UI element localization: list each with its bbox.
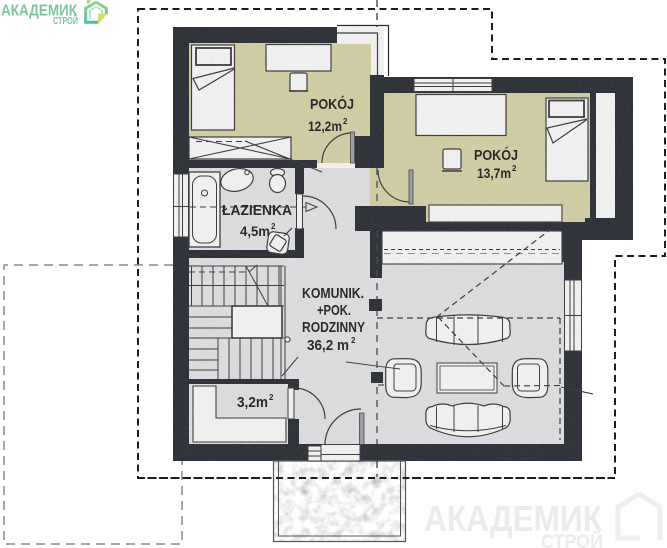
svg-text:СТРОЙ: СТРОЙ <box>53 14 78 27</box>
svg-text:СТРОЙ: СТРОЙ <box>541 531 603 548</box>
